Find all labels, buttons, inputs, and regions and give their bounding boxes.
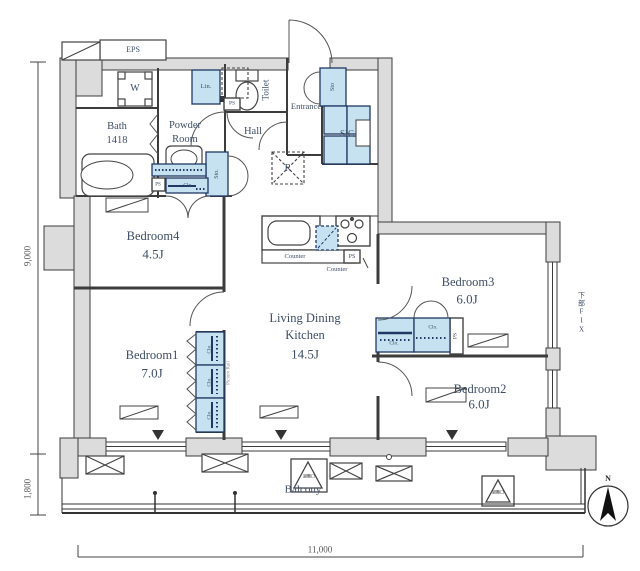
hall-ldk-door	[228, 156, 248, 196]
entrance-label: Entrance	[291, 102, 321, 111]
ps-toilet-label: PS	[229, 101, 235, 107]
evac-hatch-label-2: 避難口	[492, 491, 504, 495]
bedroom1-closet-label: Clo.	[207, 344, 213, 353]
bedroom2-size: 6.0J	[468, 398, 489, 411]
entrance-hall-door	[259, 122, 287, 150]
bedroom3-label: Bedroom3	[442, 276, 495, 289]
compass-needle	[600, 487, 616, 521]
bedroom3-closet-left	[376, 318, 414, 352]
bedroom3-door	[378, 286, 412, 320]
balcony-label: Balcony	[285, 485, 322, 496]
powder-cabinet-label: Clo.	[183, 183, 192, 189]
ldk-label2: Kitchen	[285, 329, 325, 342]
bedroom3-closet-right	[414, 318, 450, 352]
white-fixtures	[62, 40, 463, 460]
outdoor-unit-boxes	[86, 454, 412, 481]
compass	[588, 486, 628, 526]
dimension-bottom-width: 11,000	[308, 546, 332, 555]
fix-window-label: 下部FIX	[578, 292, 585, 335]
bedroom3-size: 6.0J	[456, 293, 477, 306]
storage-top-label: Sto	[330, 83, 336, 91]
bath-size: 1418	[107, 136, 128, 147]
hall-label: Hall	[244, 127, 262, 138]
ldk-label: Living Dining	[269, 312, 340, 325]
bedroom1-label: Bedroom1	[126, 349, 179, 362]
kitchen-sink	[268, 221, 310, 245]
bedroom3-closet-right-label: Clo.	[428, 325, 437, 331]
bedroom1-closet-label: Clo.	[207, 410, 213, 419]
bedroom4-door	[166, 196, 210, 218]
toilet-label: Toilet	[262, 80, 271, 101]
entrance-door	[289, 20, 332, 63]
evac-hatch-label-1: 避難口	[303, 475, 315, 479]
floor-plan: EPS W Lin. Toilet PS Entrance Sto SIC Ba…	[0, 0, 640, 571]
storage-mid-label: Sto.	[214, 169, 220, 179]
sic-cell	[324, 136, 347, 164]
bedroom2-label: Bedroom2	[454, 383, 507, 396]
dimension-left-height: 9,000	[24, 246, 33, 266]
bedroom2-door	[378, 362, 412, 396]
bath-label: Bath	[107, 122, 127, 133]
bedroom3-closet-left-label: Clo.	[389, 341, 398, 347]
ps-kitchen-label: PS	[349, 254, 356, 260]
bedroom1-door	[190, 292, 224, 326]
counter-label-2: Counter	[327, 267, 348, 274]
bedroom3-closet-doors	[414, 301, 448, 318]
eps-label: EPS	[126, 46, 140, 54]
powder-room-label2: Room	[172, 135, 198, 146]
powder-room-label: Powder	[169, 121, 201, 132]
compass-north-label: N	[605, 475, 611, 483]
toilet-tank	[236, 70, 258, 81]
ps-bath-label: PS	[155, 183, 161, 188]
bedroom1-size: 7.0J	[141, 367, 162, 380]
ldk-size: 14.5J	[291, 348, 319, 361]
sic-label: SIC	[340, 130, 354, 139]
bedroom1-closet-label: Clo.	[207, 377, 213, 386]
bedroom1-closet-doors	[187, 334, 196, 430]
bedroom4-label: Bedroom4	[127, 230, 180, 243]
picture-rail-label: Picture Rail	[227, 361, 232, 385]
refrigerator-label: R	[285, 164, 292, 174]
washer-label: W	[130, 84, 139, 94]
dimension-balcony-depth: 1,800	[24, 479, 33, 499]
counter-label-1: Counter	[285, 254, 306, 261]
balcony-drain	[387, 455, 392, 460]
storage-top-doors	[304, 72, 320, 104]
bath-folding-door	[150, 114, 158, 154]
counter-band	[262, 250, 356, 263]
ps-bedroom3-label: PS	[453, 333, 459, 339]
bedroom4-size: 4.5J	[142, 248, 163, 261]
linen-label: Lin.	[201, 84, 212, 91]
